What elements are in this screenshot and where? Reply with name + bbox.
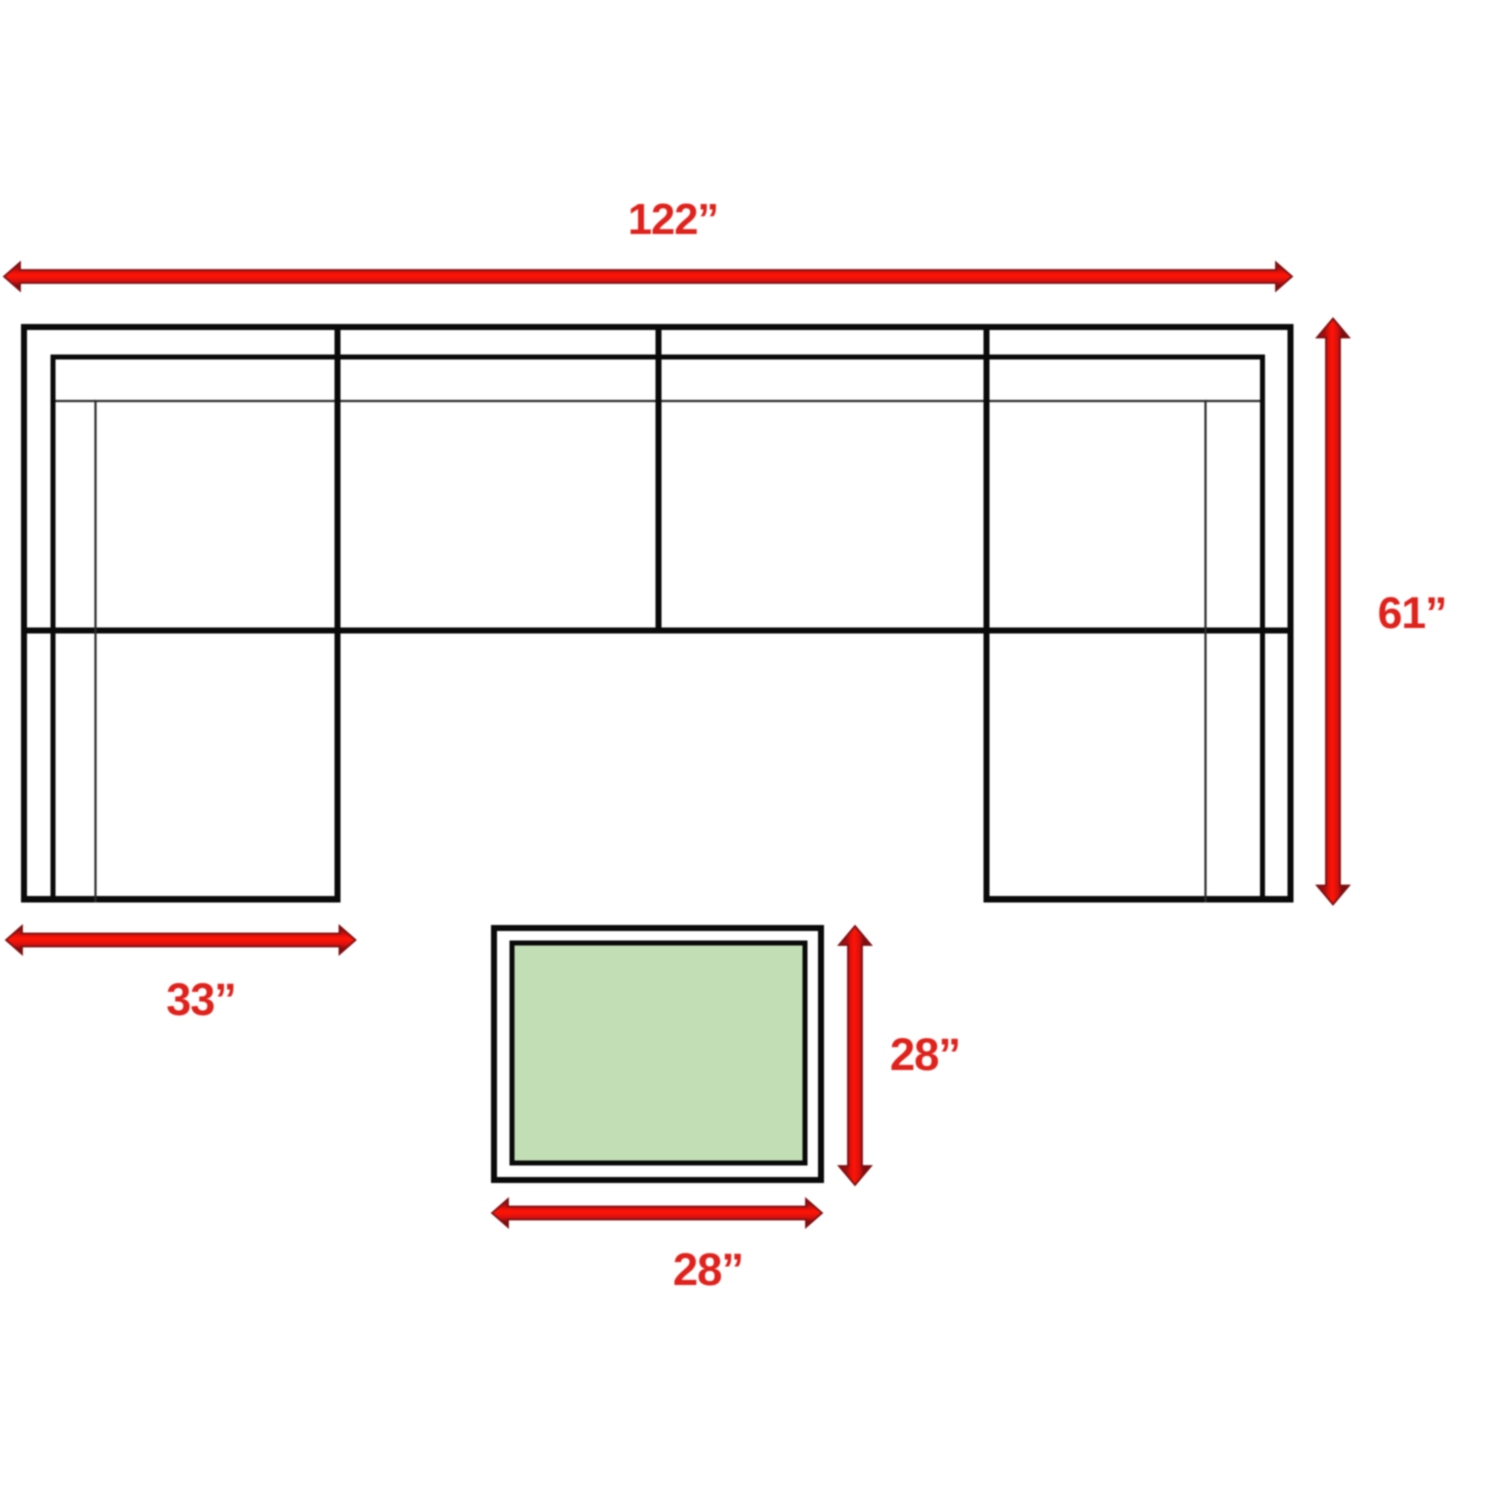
svg-text:33”: 33” [166,974,236,1025]
svg-text:61”: 61” [1378,589,1447,638]
svg-text:122”: 122” [628,196,718,244]
svg-text:28”: 28” [673,1244,743,1295]
svg-text:28”: 28” [890,1029,960,1080]
